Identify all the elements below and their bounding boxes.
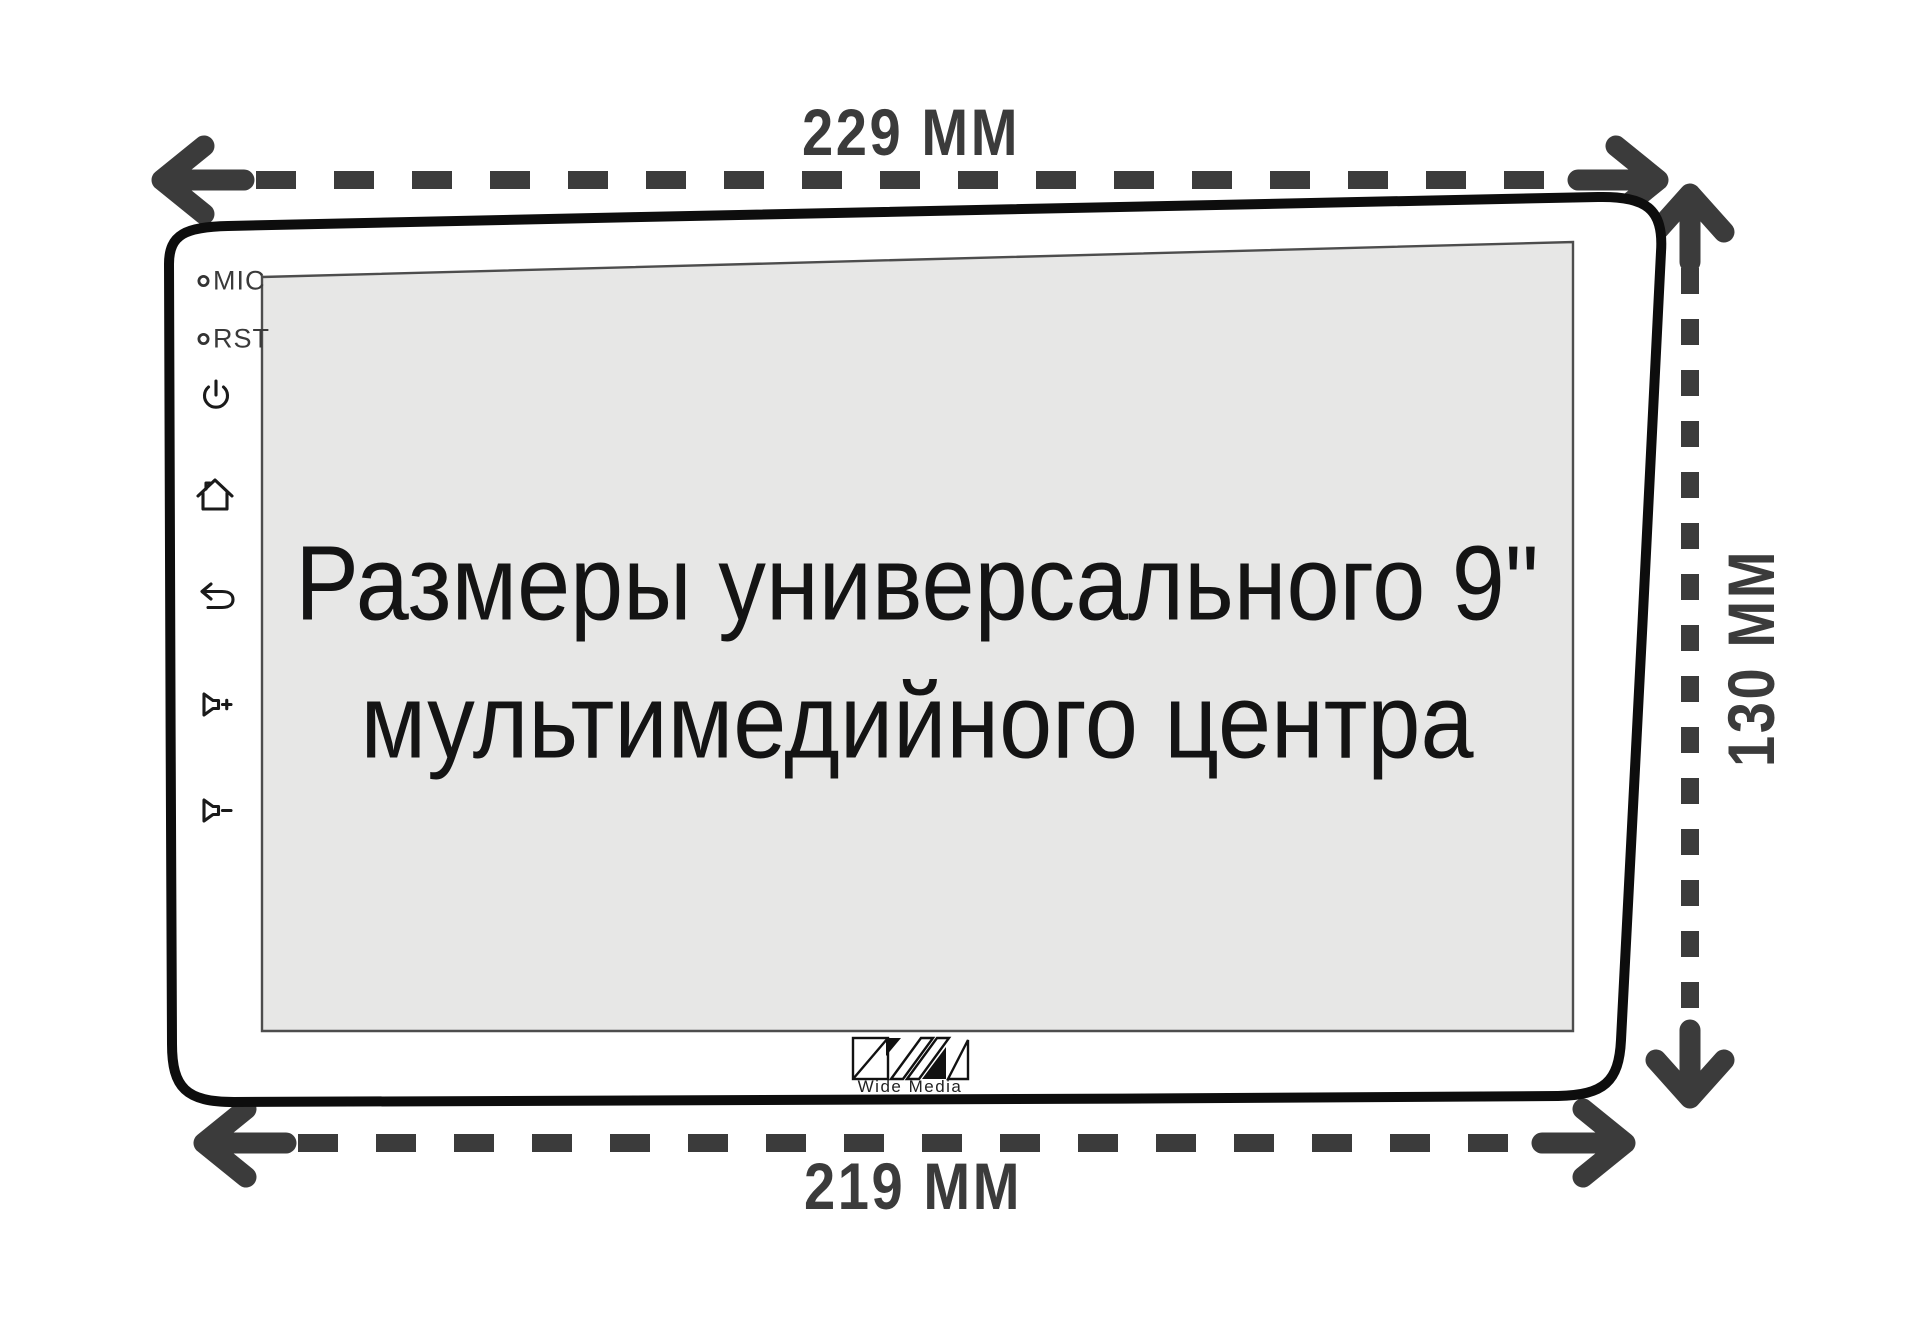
rst-label: RST (213, 324, 270, 355)
brand-label: Wide Media (858, 1077, 963, 1097)
screen-caption-line2: мультимедийного центра (360, 662, 1473, 783)
arrow-up-icon (1656, 194, 1724, 262)
top-width-label: 229 ММ (802, 94, 1020, 170)
bottom-width-label: 219 ММ (804, 1148, 1022, 1224)
arrow-right-icon (1542, 1109, 1625, 1177)
arrow-left-icon (162, 146, 244, 214)
arrow-down-icon (1656, 1030, 1724, 1098)
screen-caption-line1: Размеры универсального 9" (295, 524, 1538, 645)
side-height-label: 130 ММ (1713, 549, 1789, 767)
dimension-diagram: 229 ММ 219 ММ 130 ММ MIC RST Размеры уни… (0, 0, 1920, 1318)
mic-label: MIC (213, 266, 266, 297)
arrow-left-icon (204, 1109, 286, 1177)
diagram-artwork (0, 0, 1920, 1318)
